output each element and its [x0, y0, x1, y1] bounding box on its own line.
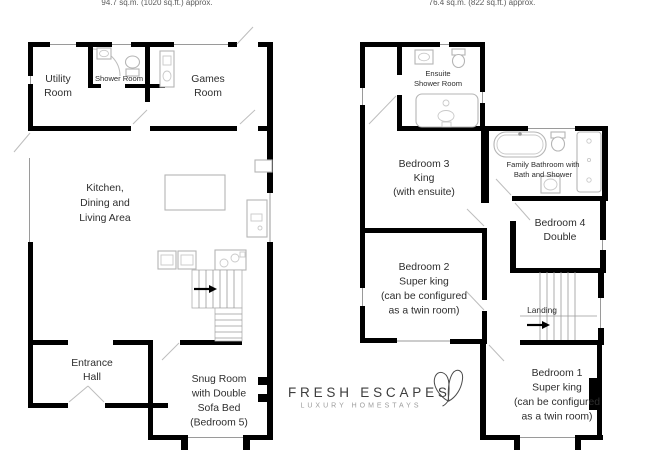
- ground-floor-area-label: 94.7 sq.m. (1020 sq.ft.) approx.: [101, 0, 212, 7]
- svg-text:Family Bathroom with: Family Bathroom with: [506, 160, 579, 169]
- svg-text:as a twin room): as a twin room): [388, 306, 459, 317]
- shower-icon: [416, 94, 478, 127]
- hob-sink-unit: [215, 250, 246, 270]
- side-unit: [255, 160, 272, 172]
- toilet-icon: [452, 49, 465, 68]
- svg-text:(with ensuite): (with ensuite): [393, 187, 455, 198]
- svg-text:Room: Room: [194, 88, 222, 99]
- room-label-landing: Landing: [527, 305, 557, 315]
- bath-icon: [494, 132, 546, 157]
- svg-text:Bath and Shower: Bath and Shower: [514, 170, 573, 179]
- svg-text:Super king: Super king: [399, 277, 449, 288]
- room-label-entrance-hall: Entrance Hall: [71, 358, 113, 383]
- svg-text:Games: Games: [191, 74, 225, 85]
- svg-text:Entrance: Entrance: [71, 358, 113, 369]
- svg-text:as a twin room): as a twin room): [521, 412, 592, 423]
- stairs-up-arrow-icon: [527, 321, 550, 329]
- svg-text:Bedroom 3: Bedroom 3: [399, 159, 450, 170]
- svg-text:Sofa Bed: Sofa Bed: [198, 403, 241, 414]
- svg-text:Bedroom 2: Bedroom 2: [399, 262, 450, 273]
- svg-text:King: King: [414, 173, 435, 184]
- logo-name: FRESH ESCAPES: [288, 385, 451, 400]
- svg-text:Kitchen,: Kitchen,: [86, 183, 124, 194]
- dining-table: [165, 175, 225, 210]
- tall-unit: [247, 200, 267, 237]
- toilet-icon: [551, 132, 565, 151]
- floorplan-page: 94.7 sq.m. (1020 sq.ft.) approx. 76.4 sq…: [0, 0, 650, 450]
- sink-icon: [415, 50, 433, 64]
- room-label-ensuite: Ensuite Shower Room: [414, 69, 462, 88]
- svg-text:Double: Double: [544, 232, 577, 243]
- svg-text:Utility: Utility: [45, 74, 71, 85]
- svg-text:Dining and: Dining and: [80, 198, 130, 209]
- svg-text:Snug Room: Snug Room: [192, 374, 247, 385]
- floorplan-canvas: 94.7 sq.m. (1020 sq.ft.) approx. 76.4 sq…: [0, 0, 650, 450]
- svg-text:Shower Room: Shower Room: [414, 79, 462, 88]
- ensuite-fixtures: [415, 49, 478, 127]
- svg-text:Bedroom 1: Bedroom 1: [532, 368, 583, 379]
- room-label-bedroom-2: Bedroom 2 Super king (can be configured …: [381, 262, 467, 317]
- logo-tagline: LUXURY HOMESTAYS: [300, 403, 421, 410]
- ground-floor-stairs: [192, 270, 242, 341]
- svg-text:(can be configured: (can be configured: [514, 397, 600, 408]
- room-label-bedroom-1: Bedroom 1 Super king (can be configured …: [514, 368, 600, 423]
- svg-text:Hall: Hall: [83, 372, 101, 383]
- room-label-snug: Snug Room with Double Sofa Bed (Bedroom …: [190, 374, 248, 429]
- room-label-bedroom-4: Bedroom 4 Double: [535, 218, 586, 243]
- svg-text:(Bedroom 5): (Bedroom 5): [190, 418, 248, 429]
- first-floor-area-label: 76.4 sq.m. (822 sq.ft.) approx.: [429, 0, 536, 7]
- room-label-games: Games Room: [191, 74, 225, 99]
- room-label-family-bathroom: Family Bathroom with Bath and Shower: [506, 160, 579, 179]
- shower-icon: [577, 132, 601, 192]
- brand-logo: FRESH ESCAPES LUXURY HOMESTAYS: [288, 370, 463, 409]
- room-label-utility: Utility Room: [44, 74, 72, 99]
- room-label-kitchen: Kitchen, Dining and Living Area: [79, 183, 131, 224]
- svg-text:Living Area: Living Area: [79, 213, 131, 224]
- ground-shower-room-fixtures: [97, 48, 140, 76]
- ground-floor-plan: Utility Room Shower Room Games Room Kitc…: [14, 27, 273, 450]
- svg-text:Super king: Super king: [532, 383, 582, 394]
- svg-text:Shower Room: Shower Room: [95, 74, 143, 83]
- svg-text:with Double: with Double: [191, 389, 247, 400]
- room-label-shower-room: Shower Room: [95, 74, 143, 83]
- games-room-cupboard: [160, 51, 174, 87]
- svg-text:(can be configured: (can be configured: [381, 291, 467, 302]
- kitchen-fixtures: [158, 160, 272, 270]
- toilet-icon: [126, 56, 140, 76]
- svg-text:Ensuite: Ensuite: [425, 69, 450, 78]
- svg-text:Bedroom 4: Bedroom 4: [535, 218, 586, 229]
- svg-text:Landing: Landing: [527, 305, 557, 315]
- svg-text:Room: Room: [44, 88, 72, 99]
- room-label-bedroom-3: Bedroom 3 King (with ensuite): [393, 159, 455, 198]
